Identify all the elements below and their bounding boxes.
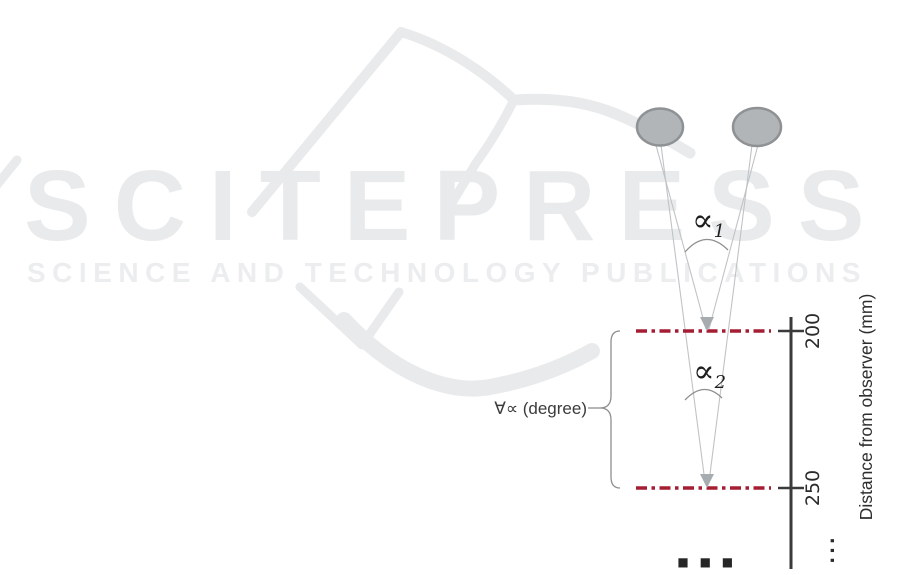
alpha1-subscript: 1 [714,221,725,242]
axis-continuation-dots: ... [818,534,839,564]
sight-line-left-far [661,145,705,482]
figure-canvas: SCITEPRESS SCIENCE AND TECHNOLOGY PUBLIC… [0,0,901,575]
axis-group [778,317,804,569]
right-eye [733,108,781,146]
sight-line-right-far [709,145,752,482]
tick-label-250: 250 [802,470,824,506]
eyes-group [637,108,781,146]
bottom-continuation-dots: ■ ■ ■ [677,555,736,569]
alpha2-symbol: ∝ [693,352,715,390]
range-brace [600,331,620,488]
vergence-arrow-near [700,317,714,331]
vergence-diagram: ∝1 ∝2 ∀∝ (degree) 200 250 Distance from … [0,0,901,575]
vergence-arrow-far [700,474,714,488]
range-label: ∀∝ (degree) [494,399,587,418]
alpha1-symbol: ∝ [692,201,714,239]
tick-label-200: 200 [802,313,824,349]
alpha2-subscript: 2 [714,372,726,393]
axis-title: Distance from observer (mm) [856,294,876,521]
alpha1-label: ∝1 [692,201,725,242]
left-eye [637,109,683,146]
sight-lines-group [656,145,758,482]
alpha2-label: ∝2 [693,352,726,393]
